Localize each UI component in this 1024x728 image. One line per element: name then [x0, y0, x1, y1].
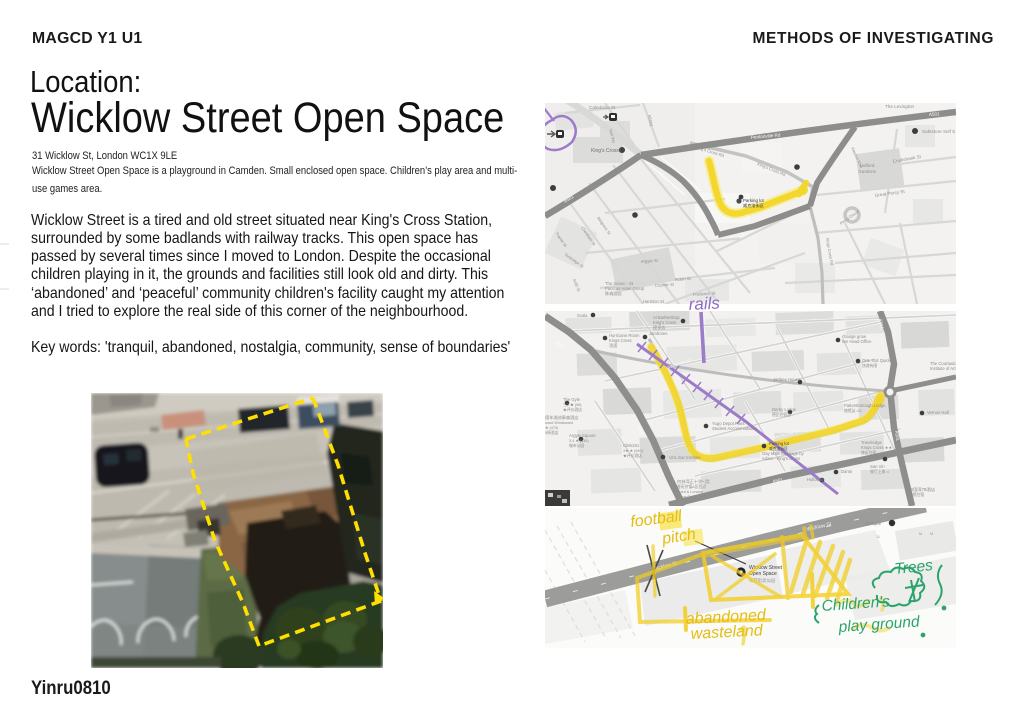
svg-text:Jarltree House: Jarltree House: [773, 377, 801, 382]
svg-text:★ (470): ★ (470): [545, 426, 559, 430]
svg-text:德年湘迪寧森酒店: 德年湘迪寧森酒店: [545, 414, 579, 421]
svg-text:A501: A501: [929, 111, 940, 117]
svg-text:香苑京镇A区西点: 香苑京镇A区西点: [677, 484, 706, 489]
svg-text:11: 11: [876, 535, 880, 539]
svg-text:ward Windsward: ward Windsward: [545, 421, 573, 425]
svg-text:烫面: 烫面: [609, 342, 617, 349]
svg-text:rails: rails: [688, 293, 721, 314]
svg-text:Argyle Square: Argyle Square: [569, 433, 596, 438]
svg-text:The Lexington: The Lexington: [885, 104, 915, 109]
svg-text:M: M: [930, 532, 933, 536]
svg-text:Parking lot: Parking lot: [769, 441, 790, 446]
svg-text:旅店住宿: 旅店住宿: [861, 450, 876, 455]
svg-text:威克洛街区: 威克洛街区: [743, 202, 764, 209]
svg-text:Vernon Hall: Vernon Hall: [927, 410, 949, 415]
svg-text:Pattersborough Lodge: Pattersborough Lodge: [844, 403, 886, 408]
svg-text:UCL Ear Institute: UCL Ear Institute: [669, 455, 701, 460]
svg-text:live Head Office: live Head Office: [842, 339, 872, 344]
svg-text:Derby Lodge: Derby Lodge: [772, 407, 797, 412]
svg-text:San Vin: San Vin: [870, 464, 885, 469]
svg-text:Adam - King's Cross: Adam - King's Cross: [762, 456, 800, 461]
svg-text:The Gyle: The Gyle: [563, 397, 581, 402]
svg-text:★评价酒店: ★评价酒店: [623, 453, 642, 458]
svg-text:旅馆丛 •21: 旅馆丛 •21: [844, 408, 862, 413]
svg-text:餐厅上海 ••: 餐厅上海 ••: [870, 469, 890, 474]
svg-text:德比住宿舍: 德比住宿舍: [772, 412, 791, 417]
svg-text:理发店: 理发店: [653, 324, 666, 331]
svg-text:King's Cross: King's Cross: [591, 148, 619, 154]
svg-text:DHL Suit Quick: DHL Suit Quick: [862, 358, 891, 363]
svg-text:Scala: Scala: [577, 313, 588, 318]
svg-text:Holloway: Holloway: [807, 477, 825, 482]
svg-text:三3 ★ (98): 三3 ★ (98): [563, 402, 582, 407]
svg-text:Caledonia St: Caledonia St: [589, 105, 616, 110]
svg-text:3.4 ★ (136): 3.4 ★ (136): [569, 439, 589, 443]
svg-text:Clink261: Clink261: [623, 443, 640, 448]
svg-text:Institute of Art: Institute of Art: [930, 366, 956, 371]
svg-text:Kings Cross ★★: Kings Cross ★★: [861, 445, 892, 450]
svg-text:旅馆住宿: 旅馆住宿: [909, 492, 924, 497]
svg-text:Student Accommodation: Student Accommodation: [712, 426, 758, 431]
svg-text:Jamboree: Jamboree: [649, 331, 668, 336]
svg-text:★评价酒店: ★评价酒店: [563, 407, 582, 412]
svg-text:3★ ★ (940): 3★ ★ (940): [623, 449, 644, 453]
svg-text:何林湾正十学• 团;: 何林湾正十学• 团;: [677, 478, 710, 485]
svg-text:5杨酒店: 5杨酒店: [545, 430, 559, 435]
svg-text:快递有限: 快递有限: [862, 363, 877, 368]
svg-text:Safestore Self S: Safestore Self S: [922, 129, 955, 134]
svg-text:Harrison St: Harrison St: [643, 299, 665, 304]
svg-text:和国湾7B酒店: 和国湾7B酒店: [909, 486, 935, 493]
svg-text:Dante: Dante: [841, 469, 853, 474]
svg-text:Point & London: Point & London: [677, 490, 703, 494]
svg-text:城市公园: 城市公园: [569, 443, 584, 448]
svg-text:Kings Cross: Kings Cross: [677, 495, 698, 499]
svg-text:M: M: [919, 532, 922, 536]
svg-text:陈森酒店: 陈森酒店: [605, 290, 622, 297]
svg-text:Intelspar: Intelspar: [865, 521, 882, 526]
svg-text:Gardens: Gardens: [858, 169, 876, 174]
svg-text:⚫: ⚫: [620, 147, 625, 152]
